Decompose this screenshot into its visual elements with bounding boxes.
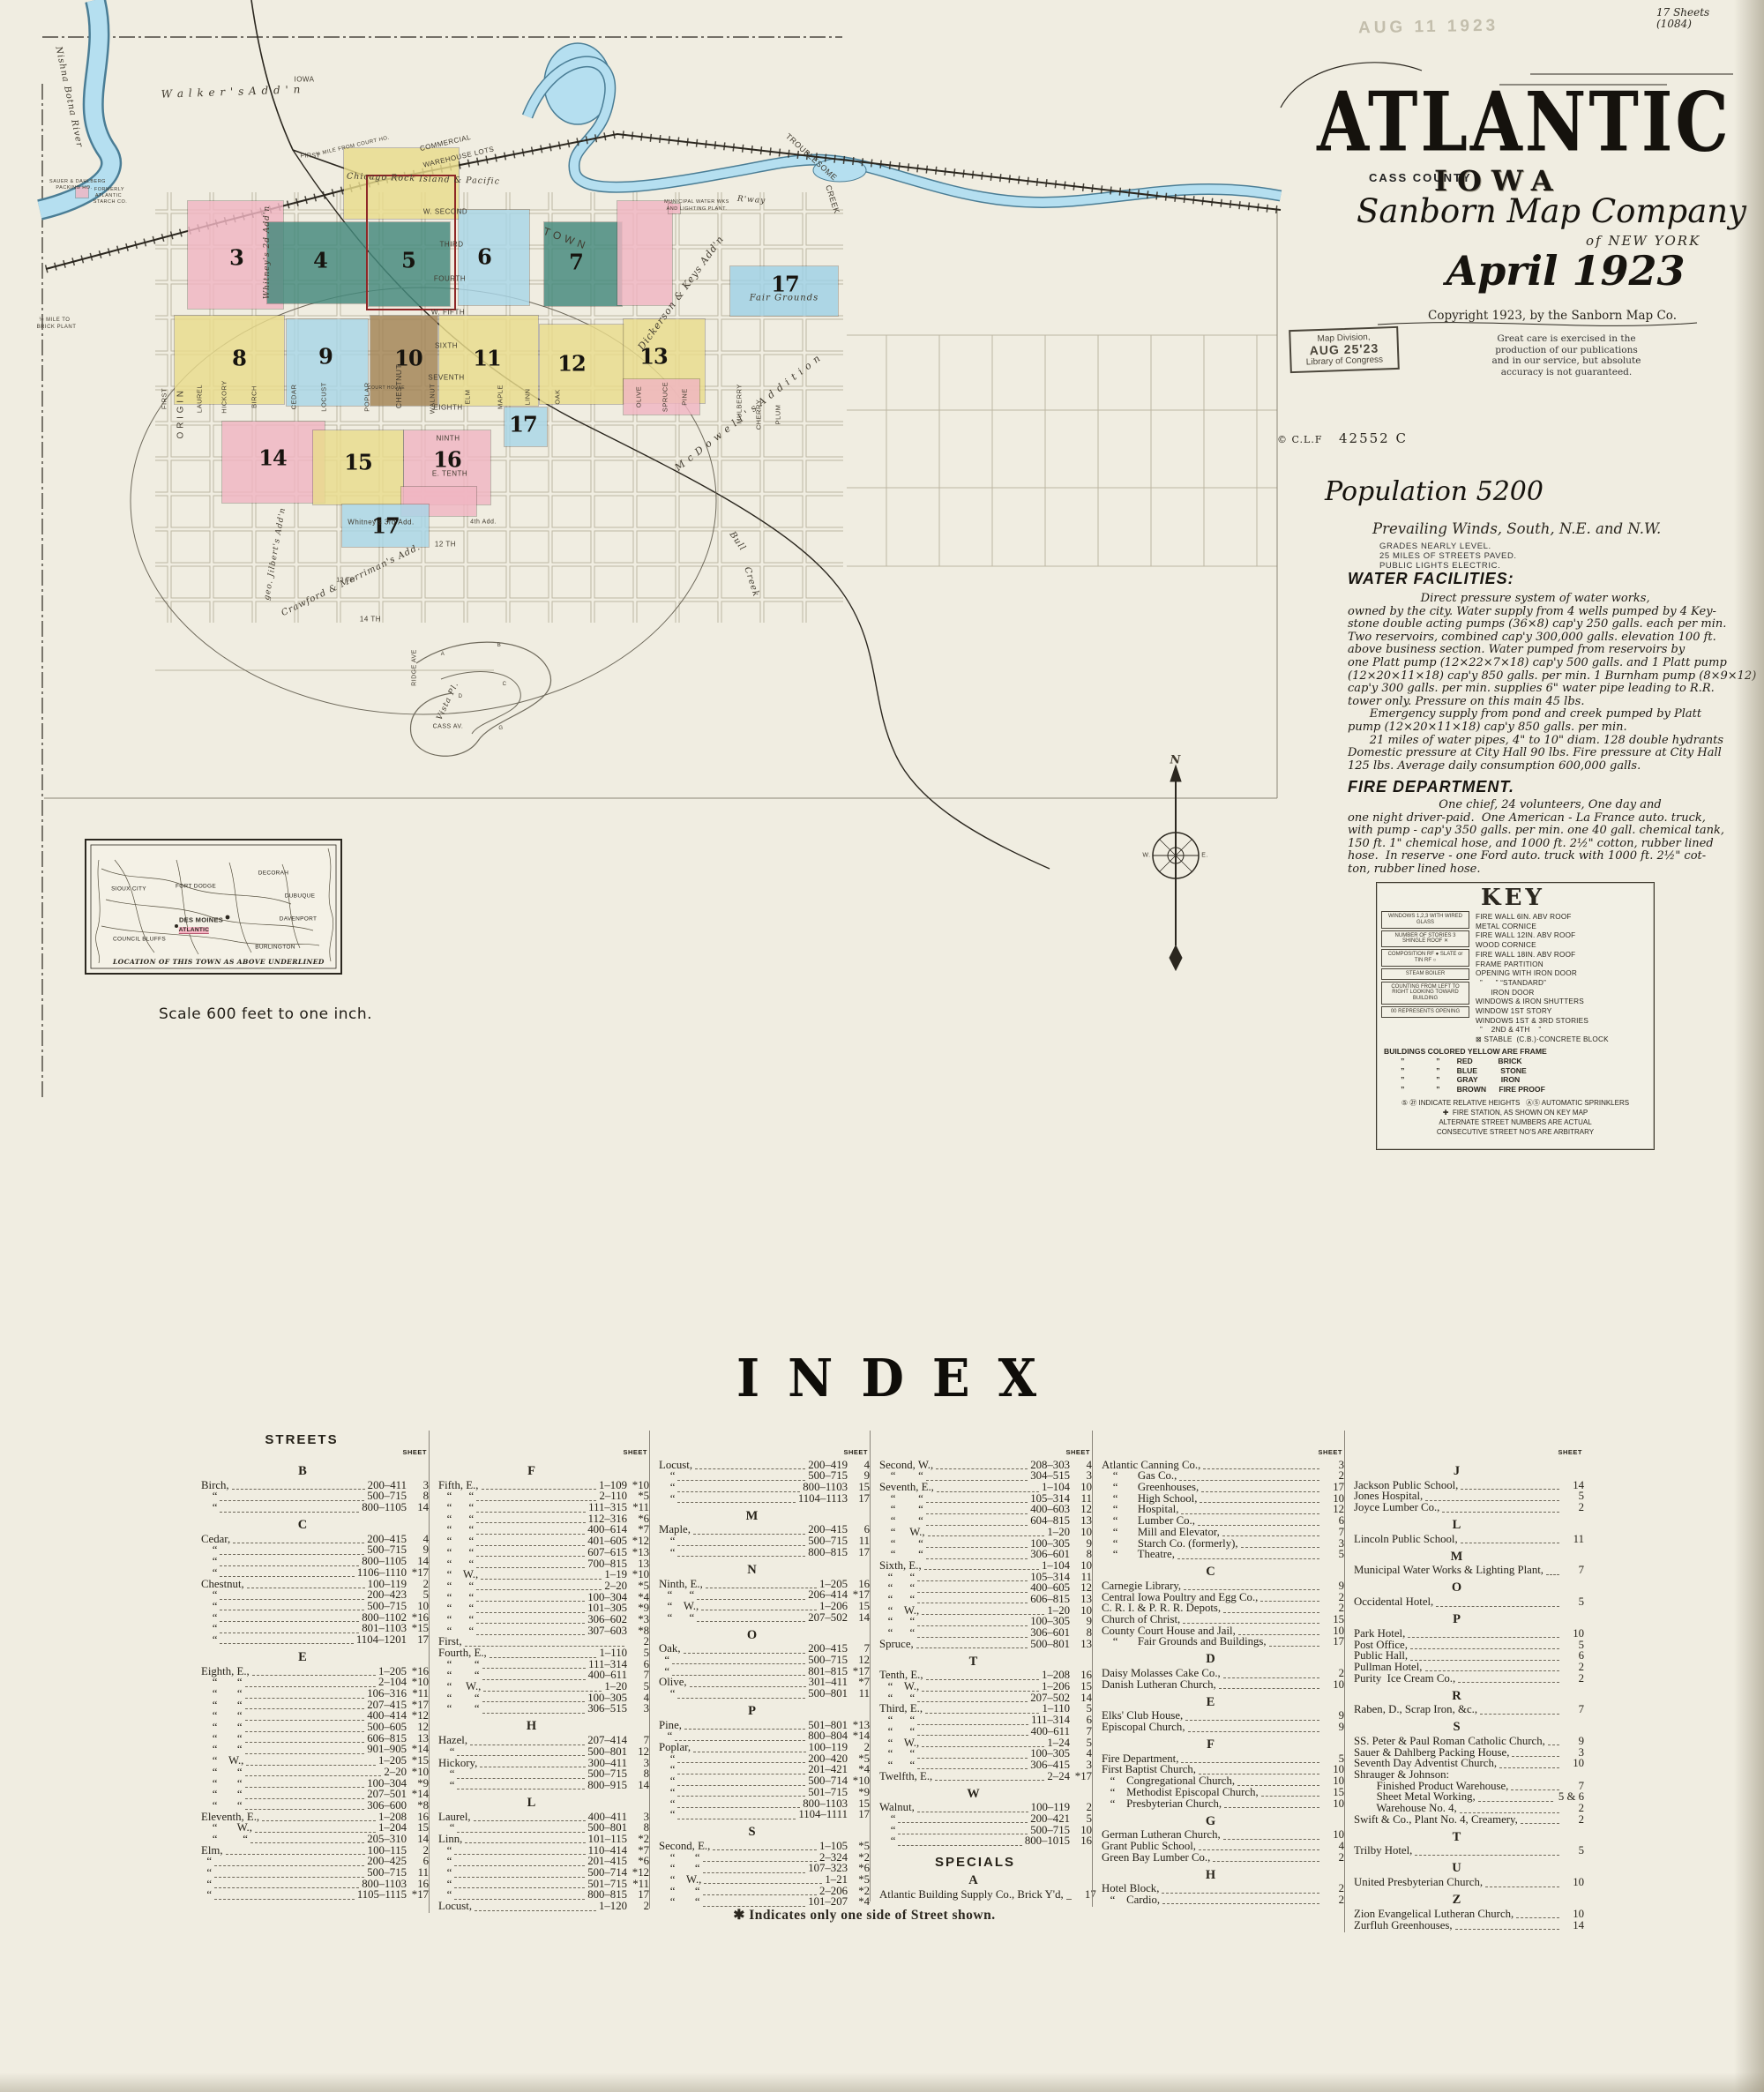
index-leader: [214, 1887, 359, 1888]
key-footer-line: ALTERNATE STREET NUMBERS ARE ACTUAL: [1380, 1117, 1650, 1127]
index-sheet-heading: SHEET: [402, 1448, 427, 1456]
index-street-name: Zurfluh Greenhouses,: [1354, 1919, 1453, 1932]
index-sheet-number: 10: [1565, 1876, 1584, 1889]
index-row: Episcopal Church,9: [1102, 1722, 1344, 1734]
index-row: Green Bay Lumber Co.,2: [1102, 1853, 1344, 1864]
map-label: FIRST: [161, 388, 168, 409]
key-cell: 00 REPRESENTS OPENING: [1381, 1006, 1469, 1018]
index-sheet-number: 17: [850, 1492, 870, 1505]
index-leader: [693, 1534, 805, 1535]
key-title: KEY: [1481, 885, 1545, 911]
map-label: THIRD: [440, 241, 464, 249]
district-number: 14: [258, 445, 286, 471]
scale-note: Scale 600 feet to one inch.: [159, 1005, 372, 1023]
fire-line: one night driver-paid. One American - La…: [1348, 812, 1724, 826]
index-street-name: Raben, D., Scrap Iron, &c.,: [1354, 1703, 1477, 1716]
map-label: FORMERLY: [94, 187, 124, 192]
index-leader: [482, 1701, 586, 1702]
index-address-range: 1104–1111: [798, 1808, 848, 1821]
index-leader: [684, 1653, 806, 1654]
index-sheet-number: 11: [1565, 1533, 1584, 1546]
index-leader: [675, 1740, 805, 1741]
index-leader: [1546, 1574, 1559, 1575]
index-street-name: “ “: [438, 1702, 480, 1715]
map-label: ELM: [464, 390, 472, 405]
index-streets-heading: STREETS: [201, 1432, 402, 1447]
district-number: 17: [509, 412, 536, 437]
index-leader: [1241, 1547, 1319, 1548]
index-leader: [917, 1812, 1028, 1812]
map-label: NINTH: [437, 435, 460, 443]
index-section-letter: S: [659, 1825, 870, 1840]
library-of-congress-stamp: Map Division,AUG 25'23Library of Congres…: [1289, 326, 1400, 373]
index-leader: [695, 1468, 805, 1469]
index-leader: [245, 1753, 365, 1754]
index-leader: [476, 1556, 585, 1557]
index-leader: [926, 1502, 1028, 1503]
index-leader: [250, 1842, 364, 1843]
index-street-name: Occidental Hotel,: [1354, 1595, 1433, 1609]
index-leader: [1410, 1648, 1559, 1649]
index-sheet-number: 17: [409, 1633, 429, 1647]
index-leader: [1461, 1543, 1559, 1543]
index-section-letter: H: [1102, 1868, 1344, 1883]
index-leader: [454, 1854, 585, 1855]
index-leader: [1219, 1688, 1319, 1689]
inset-city-label: COUNCIL BLUFFS: [113, 937, 166, 943]
key-line: FIRE WALL 18IN. ABV ROOF: [1476, 951, 1650, 960]
index-row: “ Fair Grounds and Buildings,17: [1102, 1638, 1344, 1649]
index-column: SHEETFFifth, E.,1–109*10 “ “2–110*5 “ “1…: [429, 1431, 649, 1913]
map-label: MAPLE: [497, 385, 505, 409]
index-leader: [1179, 1480, 1319, 1481]
index-column: SHEETLocust,200–4194 “500–7159 “800–1103…: [649, 1431, 870, 1909]
water-line: 125 lbs. Average daily consumption 600,0…: [1348, 760, 1756, 773]
index-leader: [1223, 1677, 1319, 1678]
index-sheet-number: *17: [1073, 1770, 1092, 1783]
key-line: WINDOWS 1ST & 3RD STORIES: [1476, 1017, 1650, 1027]
index-row: “800–91514: [438, 1781, 649, 1792]
index-leader: [245, 1720, 365, 1721]
index-street-name: “: [659, 1492, 675, 1505]
index-section-letter: E: [201, 1650, 429, 1665]
map-label: E. TENTH: [432, 470, 467, 478]
inset-city-label: BURLINGTON: [255, 945, 295, 951]
index-leader: [220, 1599, 364, 1600]
index-leader: [262, 1820, 376, 1821]
index-leader: [245, 1686, 376, 1687]
key-color-lines: BUILDINGS COLORED YELLOW ARE FRAME ” ” R…: [1384, 1047, 1648, 1095]
key-line: METAL CORNICE: [1476, 923, 1650, 932]
index-sheet-number: 2: [1565, 1672, 1584, 1685]
index-address-range: 307–603: [587, 1625, 627, 1638]
index-leader: [924, 1569, 1039, 1570]
fire-department-heading: FIRE DEPARTMENT.: [1348, 778, 1514, 796]
index-leader: [1199, 1849, 1319, 1850]
copyright-line: Copyright 1923, by the Sanborn Map Co.: [1392, 309, 1713, 323]
map-label: EIGHTH: [433, 404, 462, 412]
index-leader: [706, 1588, 817, 1588]
index-leader: [677, 1502, 795, 1503]
index-street-name: Swift & Co., Plant No. 4, Creamery,: [1354, 1813, 1518, 1827]
index-leader: [476, 1567, 585, 1568]
index-leader: [214, 1877, 364, 1878]
map-title-city: ATLANTIC: [1307, 74, 1741, 170]
water-line: (12×20×11×18) cap'y 850 galls. per min. …: [1348, 670, 1756, 684]
index-street-name: United Presbyterian Church,: [1354, 1876, 1483, 1889]
map-label: W. FIFTH: [431, 309, 465, 317]
index-row: “ Presbyterian Church,10: [1102, 1799, 1344, 1811]
index-leader: [935, 1780, 1044, 1781]
index-leader: [476, 1534, 585, 1535]
index-leader: [917, 1758, 1028, 1759]
index-address-range: 800–1015: [1025, 1834, 1070, 1848]
key-line: WINDOW 1ST STORY: [1476, 1007, 1650, 1017]
index-leader: [476, 1634, 585, 1635]
index-leader: [1213, 1861, 1319, 1862]
index-street-name: “: [201, 1633, 217, 1647]
index-leader: [677, 1480, 805, 1481]
district-number: 4: [313, 248, 327, 273]
index-leader: [476, 1623, 585, 1624]
index-leader: [1181, 1513, 1319, 1514]
index-leader: [697, 1599, 805, 1600]
index-street-name: “ Fair Grounds and Buildings,: [1102, 1635, 1267, 1648]
map-label: 4th Add.: [470, 519, 497, 526]
index-street-name: “: [659, 1687, 675, 1700]
map-label: SPRUCE: [661, 382, 669, 412]
index-leader: [255, 1832, 376, 1833]
fire-line: with pump - cap'y 350 galls. per min. on…: [1348, 825, 1724, 838]
index-sheet-number: 7: [1565, 1564, 1584, 1577]
index-section-letter: G: [1102, 1814, 1344, 1829]
index-leader: [476, 1545, 585, 1546]
index-leader: [677, 1762, 805, 1763]
index-section-letter: P: [659, 1704, 870, 1719]
index-leader: [214, 1899, 355, 1900]
index-leader: [937, 1491, 1039, 1492]
sheet-count-note: 17 Sheets(1084): [1656, 7, 1745, 30]
disclaimer-text: Great care is exercised in theproduction…: [1462, 333, 1671, 377]
index-address-range: 800–815: [808, 1546, 848, 1559]
index-street-name: Spruce,: [879, 1638, 914, 1651]
map-label: AND LIGHTING PLANT.: [667, 206, 728, 212]
index-section-letter: O: [659, 1628, 870, 1643]
map-label: A: [441, 652, 445, 657]
index-sheet-number: 10: [1565, 1757, 1584, 1770]
index-section-letter: M: [659, 1509, 870, 1524]
disclaimer-line: and in our service, but absolute: [1462, 355, 1671, 367]
map-label: ½ MILE TO: [40, 318, 71, 323]
index-street-name: Municipal Water Works & Lighting Plant,: [1354, 1564, 1543, 1577]
index-row: Zurfluh Greenhouses,14: [1354, 1921, 1584, 1932]
index-leader: [1200, 1502, 1319, 1503]
index-leader: [220, 1500, 364, 1501]
water-line: stone double acting pumps (36×8) cap'y 2…: [1348, 618, 1756, 631]
index-sheet-number: 10: [1325, 1797, 1344, 1811]
key-line: FIRE WALL 12IN. ABV ROOF: [1476, 931, 1650, 941]
population-note: Population 5200: [1325, 476, 1543, 507]
index-row: “1104–120117: [201, 1635, 429, 1647]
index-leader: [922, 1614, 1044, 1615]
map-label: FOURTH: [434, 275, 466, 283]
index-street-name: “ “: [659, 1611, 694, 1625]
index-street-name: Danish Lutheran Church,: [1102, 1678, 1216, 1692]
inset-caption: LOCATION OF THIS TOWN AS ABOVE UNDERLINE…: [113, 958, 316, 966]
index-leader: [476, 1522, 586, 1523]
index-column: SHEETAtlantic Canning Co.,3 “ Gas Co.,2 …: [1092, 1431, 1344, 1907]
map-label: E.: [1201, 853, 1208, 859]
water-line: tower only. Pressure on this main 45 lbs…: [1348, 696, 1756, 709]
map-label: W. SECOND: [423, 208, 467, 216]
index-leader: [220, 1621, 359, 1622]
inset-city-label: DUBUQUE: [285, 893, 316, 900]
index-columns: STREETSSHEETBBirch,200–4113 “500–7158 “8…: [201, 1431, 1584, 1932]
index-row: Purity Ice Cream Co.,2: [1354, 1674, 1584, 1685]
key-line: WOOD CORNICE: [1476, 941, 1650, 951]
index-row: “800–110514: [201, 1503, 429, 1514]
index-leader: [1162, 1903, 1319, 1904]
index-leader: [925, 1713, 1039, 1714]
key-cell: COMPOSITION RF ● SLATE or TIN RF ○: [1381, 949, 1469, 967]
index-leader: [481, 1579, 602, 1580]
index-sheet-heading: SHEET: [623, 1448, 647, 1456]
index-row: United Presbyterian Church,10: [1354, 1878, 1584, 1889]
fire-line: hose. In reserve - one Ford auto. truck …: [1348, 850, 1724, 863]
map-label: LINN: [524, 388, 532, 405]
map-label: PINE: [681, 388, 689, 406]
map-label: LOCUST: [320, 382, 328, 411]
index-leader: [926, 1558, 1028, 1559]
index-leader: [476, 1612, 585, 1613]
fire-line: One chief, 24 volunteers, One day and: [1348, 799, 1724, 812]
water-line: pump (12×20×11×18) cap'y 850 galls. per …: [1348, 721, 1756, 735]
index-sheet-number: 5: [1565, 1595, 1584, 1609]
index-leader: [476, 1589, 602, 1590]
index-leader: [470, 1745, 585, 1745]
key-footer-line: CONSECUTIVE STREET NO'S ARE ARBITRARY: [1380, 1127, 1650, 1137]
index-leader: [1415, 1855, 1559, 1856]
water-line: Domestic pressure at City Hall 90 lbs. F…: [1348, 747, 1756, 760]
index-leader: [684, 1729, 805, 1730]
index-leader: [1223, 1612, 1319, 1613]
index-section-letter: F: [438, 1464, 649, 1479]
map-block-yellow: [175, 316, 284, 404]
index-leader: [220, 1565, 359, 1566]
index-leader: [454, 1899, 585, 1900]
inset-city-label: ATLANTIC: [179, 927, 209, 934]
index-section-letter: B: [201, 1464, 429, 1479]
index-leader: [697, 1621, 805, 1622]
key-symbol-cells: WINDOWS 1,2,3 WITH WIRED GLASSNUMBER OF …: [1381, 911, 1469, 1020]
index-leader: [1408, 1637, 1559, 1638]
map-label: COURT HOUSE: [368, 385, 405, 391]
fire-department-text: One chief, 24 volunteers, One day andone…: [1348, 799, 1724, 877]
index-sheet-number: 14: [630, 1779, 649, 1792]
index-leader: [1461, 1489, 1559, 1490]
index-section-letter: L: [1354, 1518, 1584, 1533]
index-leader: [482, 1679, 586, 1680]
index-section-letter: M: [1354, 1550, 1584, 1565]
index-leader: [917, 1625, 1028, 1626]
index-sheet-number: 14: [1565, 1919, 1584, 1932]
index-leader: [898, 1822, 1028, 1823]
key-line: OPENING WITH IRON DOOR: [1476, 969, 1650, 979]
map-label: BRICK PLANT: [37, 325, 77, 330]
index-leader: [1455, 1929, 1559, 1930]
map-label: D: [459, 694, 463, 699]
map-label: SEVENTH: [428, 374, 464, 382]
index-leader: [898, 1845, 1021, 1846]
index-leader: [922, 1746, 1044, 1747]
index-row: “800–101516: [879, 1837, 1092, 1849]
index-leader: [1224, 1807, 1319, 1808]
index-footnote: ✱ Indicates only one side of Street show…: [617, 1907, 1111, 1924]
index-leader: [1480, 1714, 1559, 1715]
map-key-legend: KEY WINDOWS 1,2,3 WITH WIRED GLASSNUMBER…: [1376, 882, 1655, 1150]
sanborn-map-sheet: { "meta":{"stamp_top":"AUG 11 1923","she…: [0, 0, 1764, 2092]
index-sheet-number: 13: [1073, 1638, 1092, 1651]
index-leader: [1478, 1801, 1553, 1802]
index-leader: [246, 1765, 376, 1766]
map-label: PACKING HO.: [56, 185, 92, 191]
map-label: ATLANTIC: [95, 193, 122, 198]
index-specials-heading: SPECIALS: [879, 1855, 1092, 1870]
index-leader: [690, 1686, 806, 1687]
index-street-name: “: [438, 1779, 454, 1792]
index-street-name: “: [201, 1888, 212, 1901]
map-block-blue: [459, 210, 529, 305]
received-stamp: AUG 11 1923: [1358, 17, 1499, 39]
key-footer-line: ⑤ ㉗ INDICATE RELATIVE HEIGHTS ⒶⓈ AUTOMAT…: [1380, 1098, 1650, 1108]
index-leader: [916, 1647, 1028, 1648]
index-row: Municipal Water Works & Lighting Plant,7: [1354, 1566, 1584, 1578]
index-leader: [1185, 1720, 1319, 1721]
index-leader: [1162, 1893, 1319, 1894]
index-leader: [1521, 1823, 1559, 1824]
index-leader: [677, 1807, 800, 1808]
index-leader: [1177, 1558, 1319, 1559]
index-section-letter: F: [1102, 1737, 1344, 1752]
index-leader: [898, 1834, 1028, 1834]
index-section-letter: U: [1354, 1861, 1584, 1876]
index-row: Atlantic Building Supply Co., Brick Y'd,…: [879, 1890, 1092, 1901]
index-street-name: “: [201, 1501, 217, 1514]
index-leader: [1499, 1767, 1559, 1768]
index-leader: [454, 1877, 585, 1878]
key-line: ⊠ STABLE (C.B.)·CONCRETE BLOCK: [1476, 1035, 1650, 1045]
index-sheet-number: 16: [1073, 1834, 1092, 1848]
index-sheet-number: 3: [630, 1702, 649, 1715]
fire-line: 150 ft. 1" chemical hose, and 1000 ft. 2…: [1348, 838, 1724, 851]
index-leader: [457, 1832, 585, 1833]
index-street-name: Lincoln Public School,: [1354, 1533, 1458, 1546]
index-row: Lincoln Public School,11: [1354, 1535, 1584, 1546]
index-section-letter: H: [438, 1719, 649, 1734]
index-address-range: 800–915: [587, 1779, 627, 1792]
district-number: 8: [232, 346, 246, 371]
index-leader: [233, 1543, 364, 1543]
key-line: ” ” “STANDARD”: [1476, 979, 1650, 989]
index-section-letter: S: [1354, 1720, 1584, 1735]
index-leader: [1458, 1682, 1559, 1683]
index-section-letter: D: [1102, 1652, 1344, 1667]
index-leader: [252, 1675, 376, 1676]
index-street-name: “: [879, 1834, 895, 1848]
map-label: G: [498, 726, 503, 731]
index-leader: [245, 1698, 365, 1699]
index-address-range: 1105–1115: [357, 1888, 407, 1901]
disclaimer-line: Great care is exercised in the: [1462, 333, 1671, 345]
key-line: WINDOWS & IRON SHUTTERS: [1476, 997, 1650, 1007]
district-number: 6: [477, 244, 491, 270]
index-leader: [1410, 1660, 1559, 1661]
index-column: SHEETSecond, W.,208–3034 “ “304–5153Seve…: [870, 1431, 1092, 1901]
index-leader: [245, 1798, 365, 1799]
index-leader: [917, 1580, 1028, 1581]
key-color-line: BUILDINGS COLORED YELLOW ARE FRAME: [1384, 1047, 1648, 1057]
map-label: C: [503, 682, 507, 687]
index-sheet-number: 17: [1325, 1635, 1344, 1648]
index-street-name: “ Presbyterian Church,: [1102, 1797, 1222, 1811]
index-row: “800–81517: [659, 1548, 870, 1559]
index-row: Spruce,500–80113: [879, 1640, 1092, 1651]
index-leader: [677, 1491, 800, 1492]
map-label: B: [497, 643, 502, 648]
index-row: Trilby Hotel,5: [1354, 1847, 1584, 1858]
index-address-range: 1104–1113: [798, 1492, 848, 1505]
city-notes: GRADES NEARLY LEVEL.25 MILES OF STREETS …: [1379, 542, 1517, 571]
index-street-name: Locust,: [438, 1900, 472, 1913]
key-cell: COUNTING FROM LEFT TO RIGHT LOOKING TOWA…: [1381, 982, 1469, 1005]
index-street-name: Episcopal Church,: [1102, 1721, 1185, 1734]
water-facilities-heading: WATER FACILITIES:: [1348, 570, 1514, 588]
map-label: STARCH CO.: [93, 199, 128, 205]
key-footer-line: ✚ FIRE STATION, AS SHOWN ON KEY MAP: [1380, 1108, 1650, 1117]
lc-stamp-line: Library of Congress: [1293, 354, 1395, 369]
key-color-line: ” ” BLUE STONE: [1384, 1066, 1648, 1076]
index-sheet-number: *17: [409, 1888, 429, 1901]
map-label: Whitney's 3rd Add.: [348, 519, 414, 527]
index-street-name: Trilby Hotel,: [1354, 1844, 1412, 1857]
index-row: “ “306–5153: [438, 1705, 649, 1716]
index-leader: [1436, 1606, 1559, 1607]
index-leader: [245, 1708, 365, 1709]
index-sheet-number: 14: [850, 1611, 870, 1625]
index-leader: [672, 1675, 805, 1676]
map-label: LAUREL: [196, 385, 204, 413]
key-color-line: ” ” RED BRICK: [1384, 1057, 1648, 1066]
index-row: “ “307–603*8: [438, 1626, 649, 1638]
index-section-letter: O: [1354, 1580, 1584, 1595]
map-label: CASS AV.: [433, 724, 464, 730]
map-label: PLUM: [774, 405, 782, 425]
city-note-line: 25 MILES OF STREETS PAVED.: [1379, 551, 1517, 561]
map-label: OAK: [554, 389, 562, 404]
index-leader: [672, 1663, 805, 1664]
copyright-mark: © C.L.F: [1277, 434, 1322, 445]
index-leader: [220, 1643, 353, 1644]
district-number: 11: [473, 346, 500, 371]
index-section-letter: T: [1354, 1830, 1584, 1845]
map-label: 14 TH: [360, 616, 381, 624]
district-number: 9: [318, 344, 333, 370]
index-leader: [701, 1610, 817, 1610]
map-label: RIDGE AVE: [412, 649, 418, 686]
index-leader: [917, 1724, 1028, 1725]
index-section-letter: C: [1102, 1565, 1344, 1580]
index-leader: [232, 1489, 365, 1490]
